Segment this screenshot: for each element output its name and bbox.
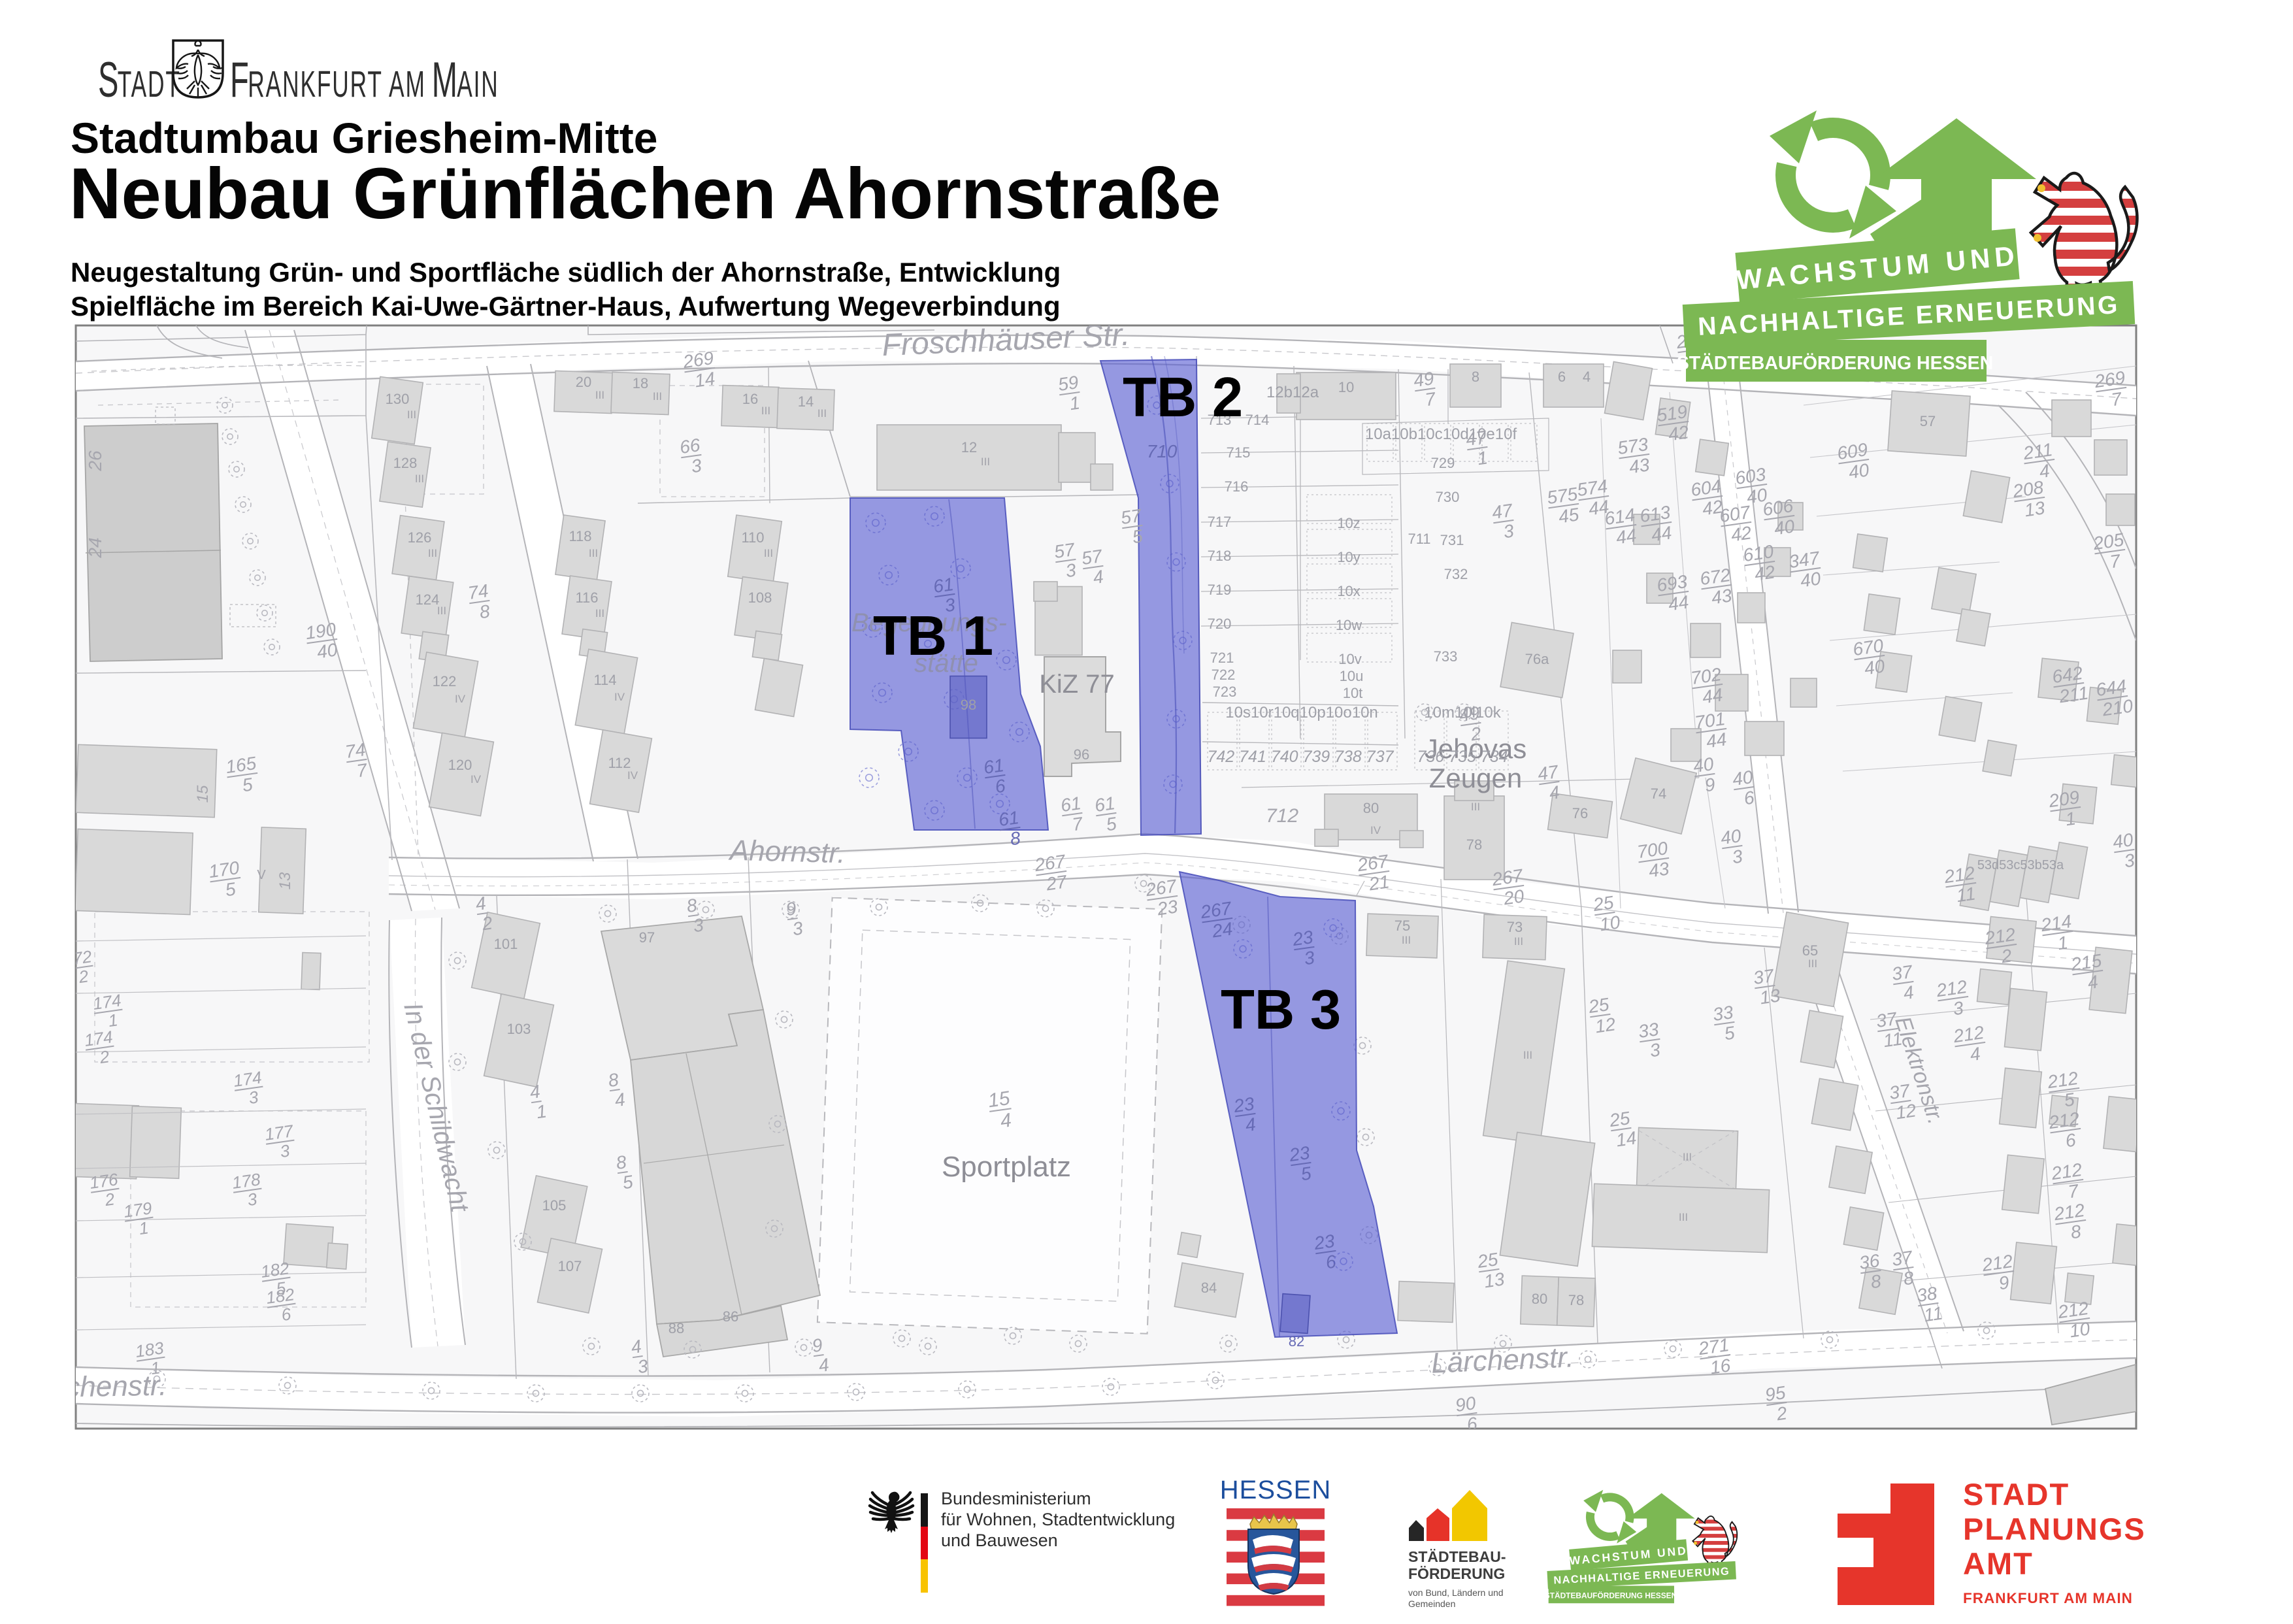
svg-text:III: III bbox=[428, 547, 437, 559]
svg-text:20: 20 bbox=[576, 374, 591, 390]
svg-text:103: 103 bbox=[507, 1021, 531, 1037]
svg-text:10: 10 bbox=[1338, 379, 1354, 395]
svg-text:97: 97 bbox=[639, 929, 655, 946]
svg-text:13: 13 bbox=[2023, 497, 2047, 520]
svg-text:33: 33 bbox=[1711, 1002, 1735, 1025]
svg-text:14: 14 bbox=[798, 393, 814, 410]
svg-text:III: III bbox=[1523, 1049, 1532, 1061]
svg-text:717: 717 bbox=[1208, 514, 1232, 530]
svg-text:RANKFURT: RANKFURT bbox=[248, 64, 383, 106]
svg-text:53d53c53b53a: 53d53c53b53a bbox=[1977, 858, 2064, 872]
svg-text:40: 40 bbox=[316, 639, 339, 662]
svg-text:STÄDTEBAU-: STÄDTEBAU- bbox=[1408, 1548, 1506, 1565]
svg-text:TB 3: TB 3 bbox=[1221, 979, 1341, 1041]
svg-text:61: 61 bbox=[1093, 793, 1116, 816]
svg-text:10v: 10v bbox=[1338, 651, 1361, 667]
svg-text:Ahornstr.: Ahornstr. bbox=[727, 835, 846, 870]
svg-text:10z: 10z bbox=[1337, 515, 1360, 531]
svg-text:95: 95 bbox=[1764, 1382, 1787, 1405]
svg-text:211: 211 bbox=[2057, 682, 2090, 706]
svg-text:61: 61 bbox=[932, 574, 955, 597]
svg-text:III: III bbox=[1679, 1211, 1688, 1223]
svg-text:101: 101 bbox=[494, 936, 518, 952]
svg-text:730: 730 bbox=[1436, 489, 1460, 505]
svg-text:118: 118 bbox=[569, 528, 591, 544]
svg-text:14: 14 bbox=[693, 368, 716, 391]
svg-text:11: 11 bbox=[1955, 883, 1977, 906]
svg-text:44: 44 bbox=[1650, 522, 1673, 545]
svg-text:43: 43 bbox=[1710, 585, 1734, 608]
svg-text:729: 729 bbox=[1431, 455, 1455, 471]
svg-text:105: 105 bbox=[542, 1197, 567, 1214]
svg-text:722: 722 bbox=[1212, 667, 1236, 683]
svg-text:IV: IV bbox=[455, 693, 466, 705]
svg-text:15: 15 bbox=[194, 785, 212, 803]
svg-text:III: III bbox=[437, 605, 446, 617]
svg-text:721: 721 bbox=[1210, 650, 1234, 666]
svg-text:III: III bbox=[595, 607, 604, 620]
svg-text:126: 126 bbox=[408, 529, 432, 546]
svg-text:III: III bbox=[981, 456, 990, 468]
svg-text:Gemeinden: Gemeinden bbox=[1408, 1599, 1455, 1609]
svg-text:10x: 10x bbox=[1337, 583, 1360, 599]
svg-text:47: 47 bbox=[1491, 500, 1515, 523]
svg-text:12: 12 bbox=[961, 439, 977, 456]
svg-text:16: 16 bbox=[742, 391, 758, 407]
svg-text:78: 78 bbox=[1568, 1292, 1584, 1308]
svg-text:11: 11 bbox=[1882, 1028, 1904, 1051]
svg-text:IV: IV bbox=[470, 773, 482, 786]
svg-text:124: 124 bbox=[416, 591, 440, 608]
svg-text:40: 40 bbox=[1863, 655, 1887, 678]
svg-text:715: 715 bbox=[1227, 444, 1251, 461]
svg-text:59: 59 bbox=[1057, 372, 1080, 395]
svg-text:47: 47 bbox=[1536, 761, 1560, 784]
svg-text:38: 38 bbox=[1915, 1283, 1939, 1306]
svg-text:65: 65 bbox=[1802, 942, 1818, 959]
svg-text:S: S bbox=[98, 53, 118, 108]
svg-text:43: 43 bbox=[1628, 454, 1651, 477]
svg-text:25: 25 bbox=[1476, 1249, 1500, 1272]
svg-text:26: 26 bbox=[85, 450, 105, 472]
svg-text:723: 723 bbox=[1213, 684, 1237, 700]
svg-text:25: 25 bbox=[1587, 994, 1611, 1017]
svg-text:23: 23 bbox=[1232, 1093, 1256, 1116]
svg-text:80: 80 bbox=[1532, 1291, 1547, 1307]
svg-text:61: 61 bbox=[982, 755, 1005, 778]
svg-text:25: 25 bbox=[1608, 1108, 1632, 1131]
svg-text:27: 27 bbox=[1044, 871, 1069, 894]
svg-text:36: 36 bbox=[1858, 1250, 1881, 1273]
svg-text:III: III bbox=[1808, 957, 1817, 970]
svg-text:42: 42 bbox=[1753, 561, 1777, 584]
svg-text:12: 12 bbox=[1594, 1014, 1617, 1036]
svg-text:23: 23 bbox=[1287, 1142, 1311, 1165]
svg-text:25: 25 bbox=[1591, 892, 1615, 915]
svg-text:711: 711 bbox=[1408, 531, 1430, 547]
svg-text:20: 20 bbox=[1502, 886, 1526, 908]
svg-text:chenstr.: chenstr. bbox=[65, 1370, 167, 1404]
svg-text:57: 57 bbox=[1053, 539, 1077, 562]
svg-text:Zeugen: Zeugen bbox=[1429, 763, 1522, 793]
svg-text:III: III bbox=[764, 547, 773, 559]
svg-text:III: III bbox=[1402, 934, 1411, 946]
svg-text:42: 42 bbox=[1667, 422, 1691, 444]
svg-text:III: III bbox=[1514, 935, 1523, 948]
svg-text:von Bund, Ländern und: von Bund, Ländern und bbox=[1408, 1587, 1504, 1598]
svg-text:57: 57 bbox=[1080, 546, 1104, 569]
svg-text:IV: IV bbox=[614, 691, 625, 703]
svg-text:10: 10 bbox=[1598, 912, 1622, 935]
svg-text:40: 40 bbox=[1847, 459, 1871, 482]
svg-text:III: III bbox=[761, 405, 770, 417]
svg-text:Neugestaltung Grün- und Sportf: Neugestaltung Grün- und Sportfläche südl… bbox=[71, 257, 1061, 288]
svg-text:37: 37 bbox=[1752, 965, 1776, 988]
svg-text:4: 4 bbox=[1583, 369, 1591, 385]
svg-text:80: 80 bbox=[1363, 800, 1379, 816]
svg-text:44: 44 bbox=[1615, 525, 1638, 548]
svg-text:86: 86 bbox=[723, 1308, 738, 1325]
svg-text:für Wohnen, Stadtentwicklung: für Wohnen, Stadtentwicklung bbox=[941, 1510, 1175, 1529]
svg-text:10y: 10y bbox=[1337, 549, 1360, 565]
svg-text:37: 37 bbox=[1890, 961, 1915, 984]
svg-text:74: 74 bbox=[1651, 786, 1666, 802]
svg-text:40: 40 bbox=[2111, 829, 2135, 852]
svg-text:108: 108 bbox=[748, 589, 772, 606]
svg-text:TB 2: TB 2 bbox=[1123, 367, 1243, 429]
svg-text:75: 75 bbox=[1394, 918, 1410, 934]
svg-text:IV: IV bbox=[1370, 824, 1381, 837]
svg-text:13: 13 bbox=[1758, 985, 1782, 1008]
svg-text:10t: 10t bbox=[1343, 685, 1363, 701]
svg-text:120: 120 bbox=[448, 757, 472, 773]
svg-text:732: 732 bbox=[1444, 566, 1468, 582]
svg-text:10u: 10u bbox=[1340, 668, 1364, 684]
svg-text:10w: 10w bbox=[1336, 617, 1362, 633]
svg-text:33: 33 bbox=[1637, 1019, 1660, 1042]
svg-text:78: 78 bbox=[1466, 837, 1482, 853]
svg-text:KiZ 77: KiZ 77 bbox=[1039, 670, 1115, 699]
svg-text:40: 40 bbox=[1719, 825, 1743, 848]
svg-text:40: 40 bbox=[1773, 516, 1796, 539]
svg-text:13: 13 bbox=[276, 872, 294, 889]
svg-text:III: III bbox=[407, 408, 416, 421]
svg-text:10s10r10q10p10o10n: 10s10r10q10p10o10n bbox=[1225, 704, 1378, 721]
svg-text:61: 61 bbox=[997, 807, 1020, 830]
svg-text:66: 66 bbox=[678, 435, 702, 457]
svg-text:720: 720 bbox=[1208, 616, 1232, 632]
svg-text:III: III bbox=[817, 407, 827, 420]
svg-text:731: 731 bbox=[1440, 532, 1464, 548]
svg-text:57: 57 bbox=[1920, 413, 1936, 429]
svg-text:44: 44 bbox=[1667, 591, 1690, 614]
svg-text:44: 44 bbox=[1705, 729, 1728, 752]
svg-text:733: 733 bbox=[1434, 648, 1458, 665]
svg-text:114: 114 bbox=[593, 672, 616, 688]
svg-text:45: 45 bbox=[1557, 504, 1581, 527]
svg-text:Neubau Grünflächen Ahornstraße: Neubau Grünflächen Ahornstraße bbox=[69, 154, 1221, 234]
svg-text:61: 61 bbox=[1059, 793, 1082, 816]
svg-text:40: 40 bbox=[1692, 754, 1715, 776]
svg-text:IV: IV bbox=[627, 769, 638, 782]
svg-text:42: 42 bbox=[1730, 522, 1753, 545]
svg-text:82: 82 bbox=[1289, 1333, 1304, 1350]
svg-text:76: 76 bbox=[1572, 805, 1588, 821]
svg-text:13: 13 bbox=[1483, 1268, 1506, 1291]
svg-text:96: 96 bbox=[1074, 746, 1089, 763]
svg-text:und Bauwesen: und Bauwesen bbox=[941, 1531, 1058, 1550]
svg-text:90: 90 bbox=[1454, 1393, 1477, 1416]
svg-text:Spielfläche im Bereich Kai-Uwe: Spielfläche im Bereich Kai-Uwe-Gärtner-H… bbox=[71, 291, 1061, 322]
svg-text:98: 98 bbox=[961, 697, 976, 713]
svg-text:18: 18 bbox=[633, 375, 648, 391]
svg-text:10a10b10c10d10e10f: 10a10b10c10d10e10f bbox=[1365, 425, 1517, 443]
svg-text:40: 40 bbox=[1731, 767, 1755, 789]
svg-text:716: 716 bbox=[1225, 478, 1249, 495]
svg-text:57: 57 bbox=[1119, 505, 1144, 528]
svg-text:49: 49 bbox=[1412, 368, 1435, 391]
svg-text:Sportplatz: Sportplatz bbox=[942, 1151, 1071, 1183]
svg-text:AM: AM bbox=[389, 64, 426, 106]
svg-text:736 735 734: 736 735 734 bbox=[1417, 748, 1508, 766]
svg-text:10: 10 bbox=[2068, 1318, 2092, 1341]
svg-text:8: 8 bbox=[1472, 369, 1479, 385]
svg-text:107: 107 bbox=[558, 1258, 582, 1274]
svg-text:PLANUNGS: PLANUNGS bbox=[1963, 1512, 2146, 1546]
svg-text:37: 37 bbox=[1888, 1080, 1912, 1103]
svg-text:24: 24 bbox=[1210, 918, 1234, 941]
svg-text:21: 21 bbox=[1367, 871, 1391, 894]
svg-text:12b12a: 12b12a bbox=[1266, 384, 1319, 401]
svg-text:14: 14 bbox=[1615, 1127, 1638, 1150]
svg-text:24: 24 bbox=[85, 537, 105, 558]
svg-text:110: 110 bbox=[741, 529, 764, 546]
svg-text:73: 73 bbox=[1507, 919, 1523, 935]
svg-text:76a: 76a bbox=[1525, 651, 1549, 667]
svg-text:122: 122 bbox=[433, 673, 457, 689]
svg-text:STADT: STADT bbox=[1963, 1477, 2070, 1512]
svg-text:23: 23 bbox=[1312, 1231, 1336, 1253]
svg-text:44: 44 bbox=[1701, 684, 1724, 707]
svg-text:710: 710 bbox=[1147, 441, 1178, 461]
svg-text:718: 718 bbox=[1208, 548, 1232, 564]
svg-text:128: 128 bbox=[393, 455, 418, 471]
svg-text:12: 12 bbox=[1894, 1100, 1918, 1123]
svg-text:719: 719 bbox=[1208, 582, 1232, 598]
svg-text:Bundesministerium: Bundesministerium bbox=[941, 1489, 1091, 1508]
svg-text:23: 23 bbox=[1155, 896, 1179, 919]
svg-text:Lärchenstr.: Lärchenstr. bbox=[1430, 1341, 1574, 1379]
svg-text:16: 16 bbox=[1709, 1355, 1732, 1378]
svg-text:III: III bbox=[589, 547, 598, 559]
svg-text:III: III bbox=[653, 390, 662, 403]
svg-text:10m10l10k: 10m10l10k bbox=[1424, 704, 1501, 721]
svg-text:V: V bbox=[257, 868, 266, 882]
svg-text:130: 130 bbox=[386, 391, 410, 407]
svg-text:11: 11 bbox=[1922, 1302, 1944, 1325]
svg-text:6: 6 bbox=[1558, 369, 1566, 385]
svg-text:F: F bbox=[230, 53, 249, 108]
svg-text:III: III bbox=[1471, 801, 1480, 813]
svg-text:210: 210 bbox=[2100, 695, 2134, 720]
svg-text:43: 43 bbox=[1647, 858, 1671, 881]
svg-text:116: 116 bbox=[575, 589, 598, 606]
svg-text:TADT: TADT bbox=[118, 64, 181, 106]
svg-text:FÖRDERUNG: FÖRDERUNG bbox=[1408, 1565, 1505, 1582]
svg-text:15: 15 bbox=[987, 1087, 1012, 1112]
svg-text:74: 74 bbox=[467, 580, 489, 603]
svg-text:88: 88 bbox=[668, 1320, 684, 1336]
svg-text:37: 37 bbox=[1890, 1247, 1915, 1270]
svg-text:M: M bbox=[432, 53, 457, 108]
svg-text:III: III bbox=[415, 472, 424, 485]
svg-text:AMT: AMT bbox=[1963, 1546, 2034, 1581]
svg-text:714: 714 bbox=[1245, 412, 1270, 428]
svg-text:HESSEN: HESSEN bbox=[1220, 1476, 1332, 1504]
svg-text:742 741 740 739 738 737: 742 741 740 739 738 737 bbox=[1208, 748, 1394, 766]
svg-text:FRANKFURT AM MAIN: FRANKFURT AM MAIN bbox=[1963, 1590, 2133, 1606]
svg-text:37: 37 bbox=[1875, 1008, 1899, 1031]
svg-text:74: 74 bbox=[344, 739, 367, 762]
svg-text:712: 712 bbox=[1266, 805, 1298, 827]
svg-text:III: III bbox=[1683, 1151, 1692, 1163]
svg-text:TB 1: TB 1 bbox=[873, 605, 993, 667]
svg-text:AIN: AIN bbox=[457, 64, 499, 106]
svg-text:84: 84 bbox=[1201, 1280, 1217, 1296]
svg-text:III: III bbox=[595, 389, 604, 401]
svg-text:23: 23 bbox=[1291, 927, 1315, 950]
svg-text:40: 40 bbox=[1799, 568, 1823, 591]
